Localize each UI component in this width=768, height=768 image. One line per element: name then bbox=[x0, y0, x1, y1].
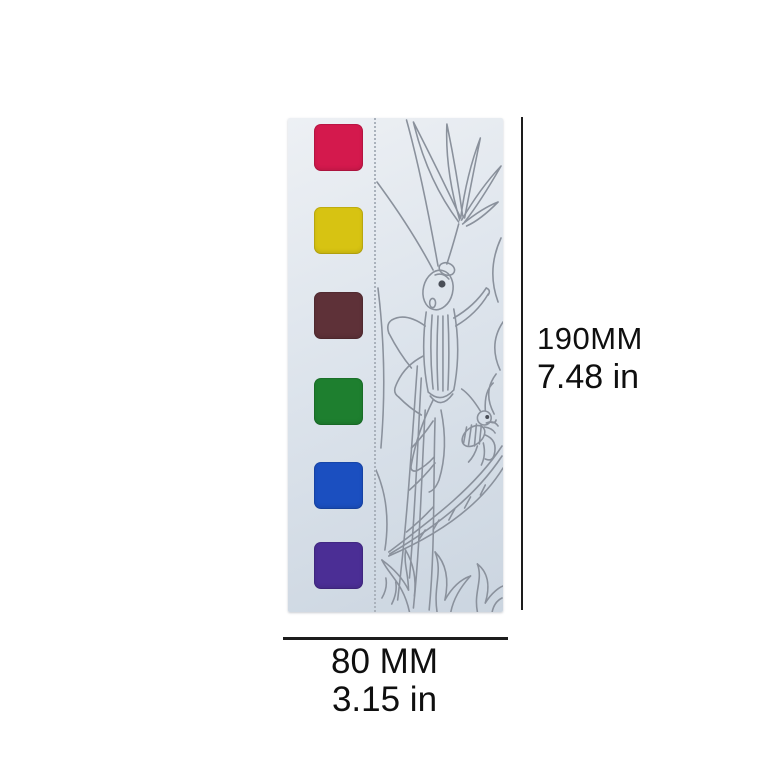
paint-swatch-blue bbox=[314, 462, 363, 509]
grasshopper-illustration bbox=[374, 118, 503, 612]
width-dimension-line bbox=[283, 637, 508, 640]
width-dimension-label: 80 MM 3.15 in bbox=[272, 642, 497, 718]
paint-swatch-green bbox=[314, 378, 363, 425]
paint-swatch-yellow bbox=[314, 207, 363, 254]
height-dimension-line bbox=[521, 117, 523, 610]
height-metric-text: 190MM bbox=[537, 321, 643, 357]
paint-swatch-purple bbox=[314, 542, 363, 589]
grasshopper-line-art-svg bbox=[376, 118, 503, 612]
height-dimension-label: 190MM 7.48 in bbox=[537, 321, 643, 397]
paint-strip bbox=[288, 118, 503, 612]
height-imperial-text: 7.48 in bbox=[537, 357, 643, 397]
product-dimension-diagram: 190MM 7.48 in 80 MM 3.15 in bbox=[0, 0, 768, 768]
width-metric-text: 80 MM bbox=[272, 642, 497, 681]
paint-swatch-maroon bbox=[314, 292, 363, 339]
paint-swatch-crimson bbox=[314, 124, 363, 171]
width-imperial-text: 3.15 in bbox=[272, 681, 497, 718]
